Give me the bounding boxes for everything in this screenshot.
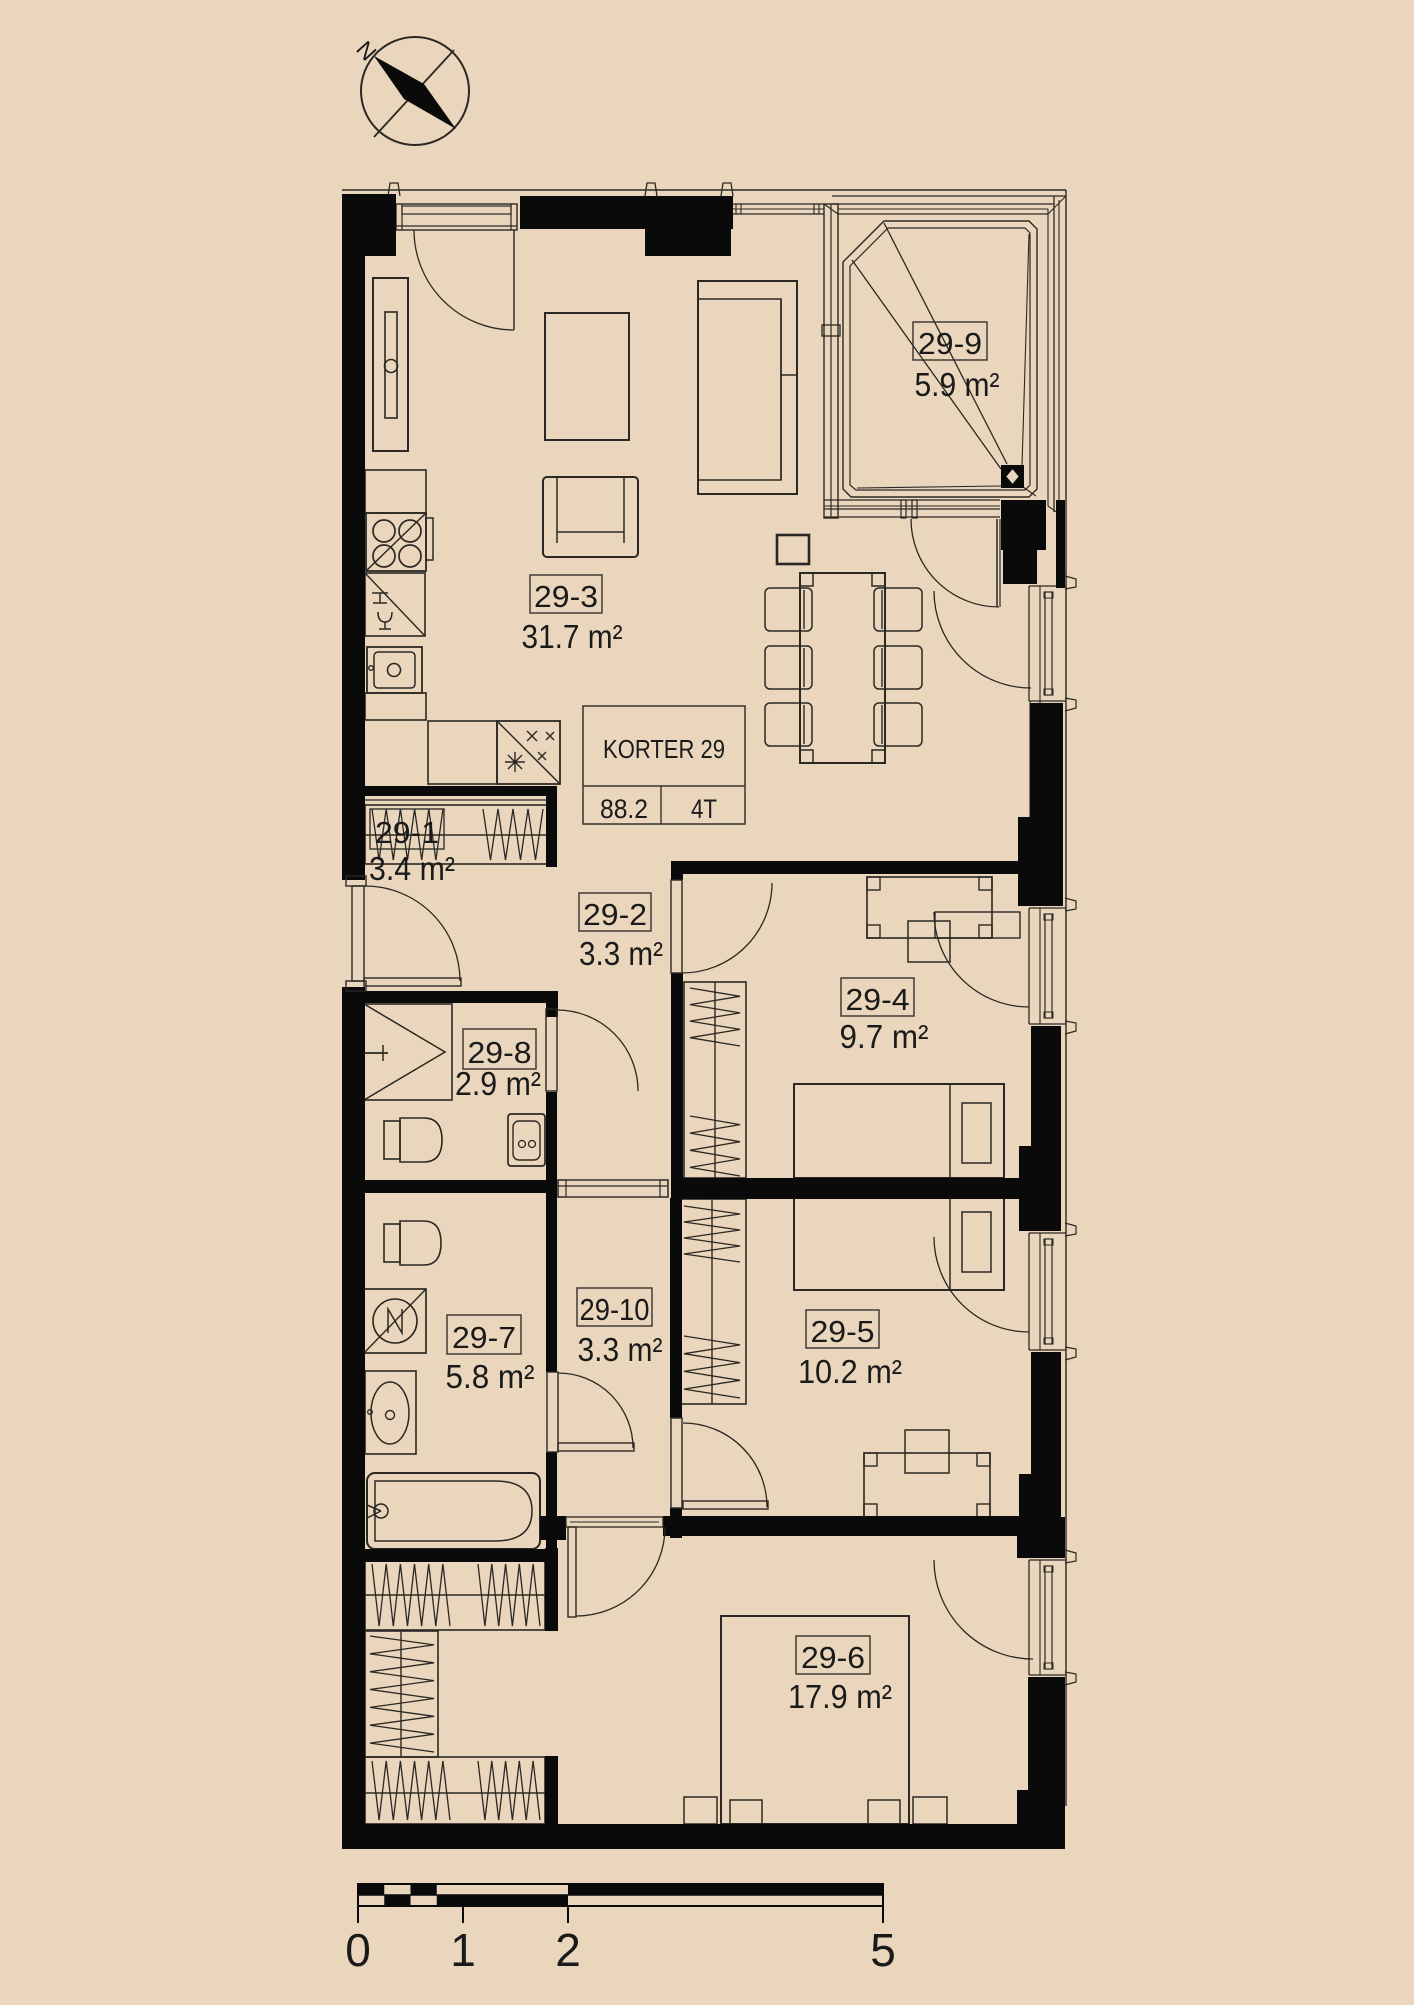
- svg-text:2.9 m²: 2.9 m²: [455, 1065, 541, 1102]
- svg-text:9.7 m²: 9.7 m²: [840, 1018, 929, 1055]
- svg-text:KORTER 29: KORTER 29: [603, 734, 725, 764]
- svg-text:4T: 4T: [691, 794, 717, 824]
- svg-text:10.2 m²: 10.2 m²: [798, 1353, 902, 1390]
- svg-text:29-7: 29-7: [452, 1320, 516, 1355]
- svg-text:0: 0: [345, 1924, 371, 1976]
- svg-text:2: 2: [555, 1924, 581, 1976]
- svg-text:29-3: 29-3: [534, 579, 598, 614]
- svg-text:3.4 m²: 3.4 m²: [369, 850, 455, 887]
- svg-text:29-6: 29-6: [801, 1640, 865, 1675]
- svg-text:31.7 m²: 31.7 m²: [522, 618, 623, 655]
- svg-text:29-10: 29-10: [580, 1292, 650, 1327]
- svg-text:5: 5: [870, 1924, 896, 1976]
- svg-text:17.9 m²: 17.9 m²: [788, 1678, 892, 1715]
- svg-text:29-2: 29-2: [583, 897, 647, 932]
- svg-text:5.9 m²: 5.9 m²: [915, 366, 1000, 403]
- svg-text:5.8 m²: 5.8 m²: [446, 1358, 535, 1395]
- svg-text:1: 1: [450, 1924, 476, 1976]
- svg-text:29-9: 29-9: [918, 326, 982, 361]
- svg-text:3.3 m²: 3.3 m²: [579, 935, 663, 972]
- svg-text:29-5: 29-5: [811, 1314, 875, 1349]
- svg-text:29-1: 29-1: [375, 815, 439, 850]
- svg-text:3.3 m²: 3.3 m²: [578, 1331, 663, 1368]
- svg-text:29-4: 29-4: [846, 982, 910, 1017]
- svg-text:88.2: 88.2: [600, 794, 648, 824]
